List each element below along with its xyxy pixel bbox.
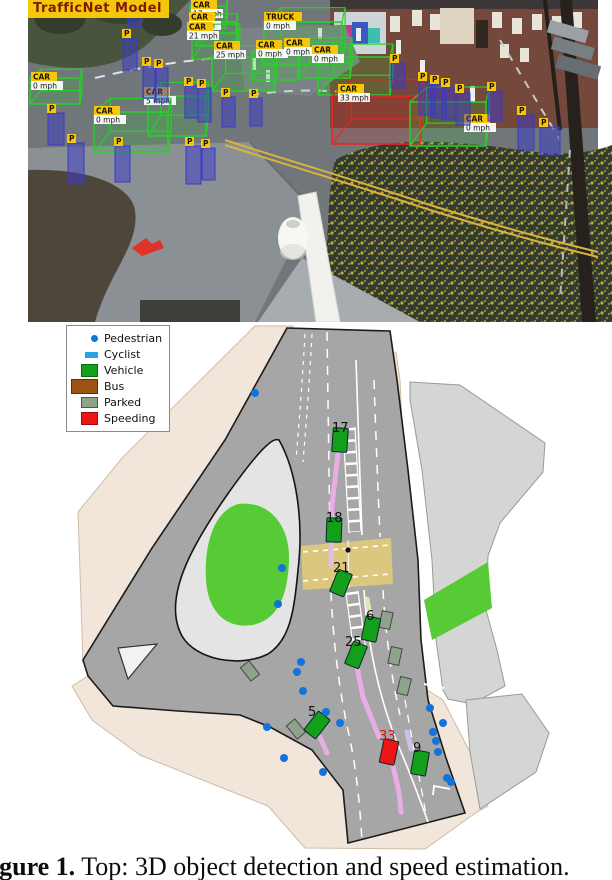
parked-swatch [81,397,98,408]
svg-text:P: P [69,134,75,143]
svg-text:P: P [186,77,192,86]
svg-text:CAR: CAR [189,23,206,32]
svg-text:P: P [203,139,209,148]
svg-text:0 mph: 0 mph [33,82,57,91]
svg-text:P: P [116,137,122,146]
pedestrian-dot [251,389,259,397]
legend-item-speeding: Speeding [71,411,162,426]
svg-text:0 mph: 0 mph [314,55,338,64]
speeding-swatch [81,412,98,425]
svg-text:P: P [392,54,398,63]
legend-item-parked: Parked [71,395,162,410]
bus-swatch [71,379,98,394]
pedestrian-dot [299,687,307,695]
svg-text:CAR: CAR [193,1,210,10]
pedestrian-dot [319,768,327,776]
pedestrian-dot [429,728,437,736]
legend-label: Parked [104,396,141,409]
svg-text:P: P [199,79,205,88]
legend-label: Vehicle [104,364,143,377]
svg-text:P: P [124,29,130,38]
svg-text:CAR: CAR [258,41,275,50]
traffic-photo: CAR17 mphCAR0 mphCAR21 mphTRUCK0 mphCAR2… [0,0,612,322]
pedestrian-dot [434,748,442,756]
legend-item-cyclist: Cyclist [71,347,162,362]
svg-text:25 mph: 25 mph [216,51,245,60]
pedestrian-dot [293,668,301,676]
svg-text:P: P [49,104,55,113]
svg-text:P: P [144,57,150,66]
svg-text:P: P [187,137,193,146]
vehicle-id-label: 21 [333,561,350,576]
pedestrian-dot [297,658,305,666]
svg-text:0 mph: 0 mph [96,116,120,125]
model-name-label: TrafficNet Model [28,0,169,18]
pedestrian-dot [336,719,344,727]
svg-text:P: P [489,82,495,91]
vehicle-id-label: 9 [413,741,421,756]
svg-text:CAR: CAR [33,73,50,82]
svg-text:P: P [251,89,257,98]
vehicle-id-label: 17 [332,421,349,436]
svg-text:P: P [443,78,449,87]
pedestrian-dot [447,778,455,786]
vehicle-swatch [81,364,98,377]
svg-text:CAR: CAR [314,46,331,55]
legend-item-vehicle: Vehicle [71,363,162,378]
legend-label: Cyclist [104,348,140,361]
svg-text:P: P [519,106,525,115]
vehicle-id-label: 5 [308,705,316,720]
svg-text:33 mph: 33 mph [340,94,369,103]
vehicle-id-label: 6 [366,609,374,624]
pedestrian-dot [278,564,286,572]
legend-item-bus: Bus [71,379,162,394]
caption-label: Figure 1. [0,852,75,880]
pedestrian-dot [263,723,271,731]
legend-label: Bus [104,380,124,393]
svg-text:CAR: CAR [96,107,113,116]
svg-text:CAR: CAR [216,42,233,51]
figure-caption: Figure 1. Top: 3D object detection and s… [0,846,612,880]
svg-text:P: P [223,88,229,97]
vehicle-id-label: 25 [345,635,362,650]
traffic-photo-figure: CAR17 mphCAR0 mphCAR21 mphTRUCK0 mphCAR2… [0,0,612,322]
pedestrian-dot [280,754,288,762]
pedestrian-dot [439,719,447,727]
vehicle-id-label: 33 [379,729,396,744]
pedestrian-swatch [91,335,98,342]
cyclist-swatch [85,352,98,358]
svg-text:0 mph: 0 mph [258,50,282,59]
svg-text:P: P [541,118,547,127]
pedestrian-dot [426,704,434,712]
pedestrian-dot [432,737,440,745]
svg-text:CAR: CAR [286,39,303,48]
map-legend: PedestrianCyclistVehicleBusParkedSpeedin… [66,325,170,432]
caption-text: Top: 3D object detection and speed estim… [75,852,569,880]
svg-text:P: P [156,59,162,68]
pedestrian-dot [274,600,282,608]
svg-text:P: P [432,75,438,84]
svg-text:P: P [420,72,426,81]
svg-text:21 mph: 21 mph [189,32,218,41]
svg-text:0 mph: 0 mph [266,22,290,31]
legend-item-pedestrian: Pedestrian [71,331,162,346]
legend-label: Pedestrian [104,332,162,345]
crossing-beacon-dot [345,547,350,552]
svg-text:P: P [457,84,463,93]
svg-text:CAR: CAR [340,85,357,94]
vehicle-id-label: 18 [326,511,343,526]
svg-text:CAR: CAR [191,13,208,22]
legend-label: Speeding [104,412,156,425]
svg-text:TRUCK: TRUCK [266,13,295,22]
pedestrian-dot [322,708,330,716]
svg-text:0 mph: 0 mph [286,48,310,57]
